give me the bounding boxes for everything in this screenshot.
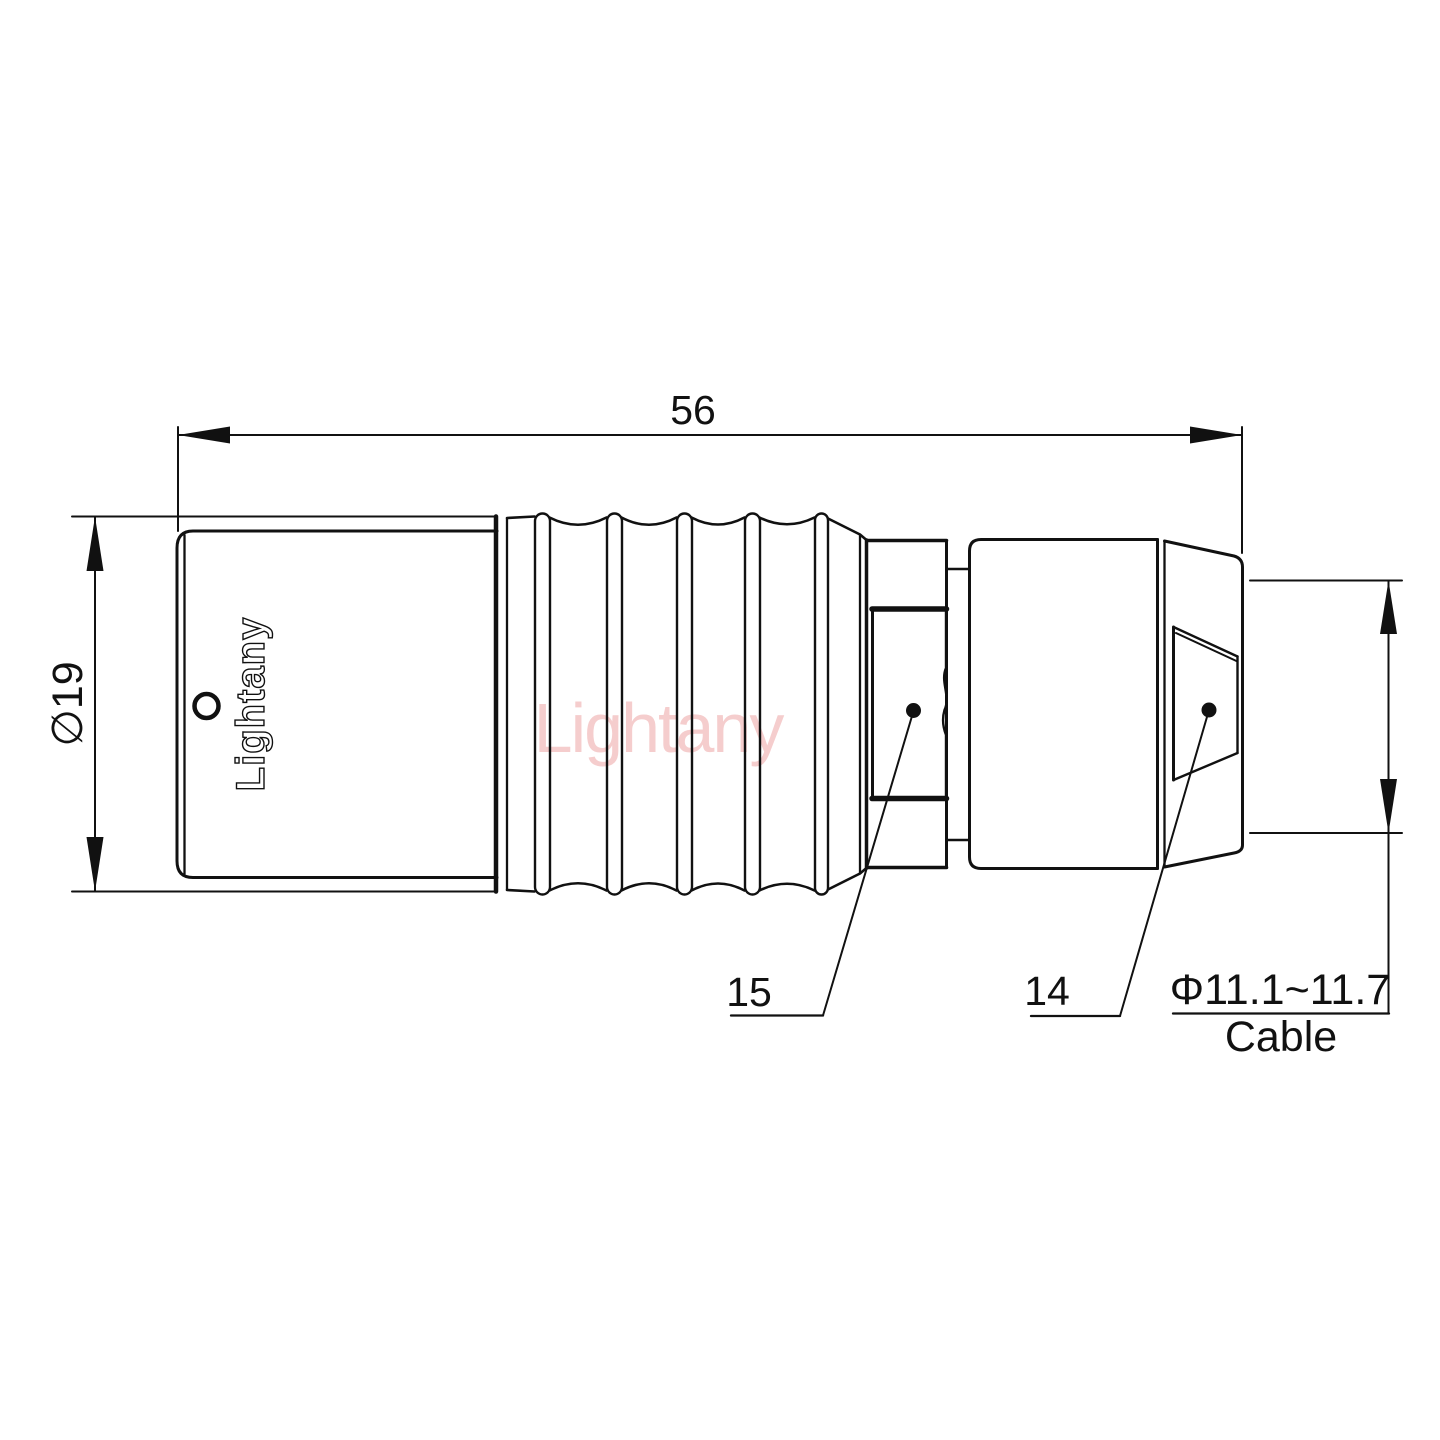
brand-logo-text: Lightany	[229, 617, 273, 792]
cable-dimension-label: Φ11.1~11.7	[1170, 966, 1390, 1014]
cable-caption-label: Cable	[1225, 1013, 1337, 1061]
part-14-label: 14	[1024, 968, 1070, 1014]
part-15-anchor-dot	[906, 703, 921, 718]
part-15-label: 15	[726, 969, 772, 1015]
watermark-text: Lightany	[534, 689, 785, 767]
technical-drawing-canvas: Lightany Lightany	[0, 0, 1440, 1440]
part-14-anchor-dot	[1202, 703, 1217, 718]
length-dimension-label: 56	[670, 387, 716, 433]
diameter-dimension-label: ∅19	[44, 661, 92, 746]
